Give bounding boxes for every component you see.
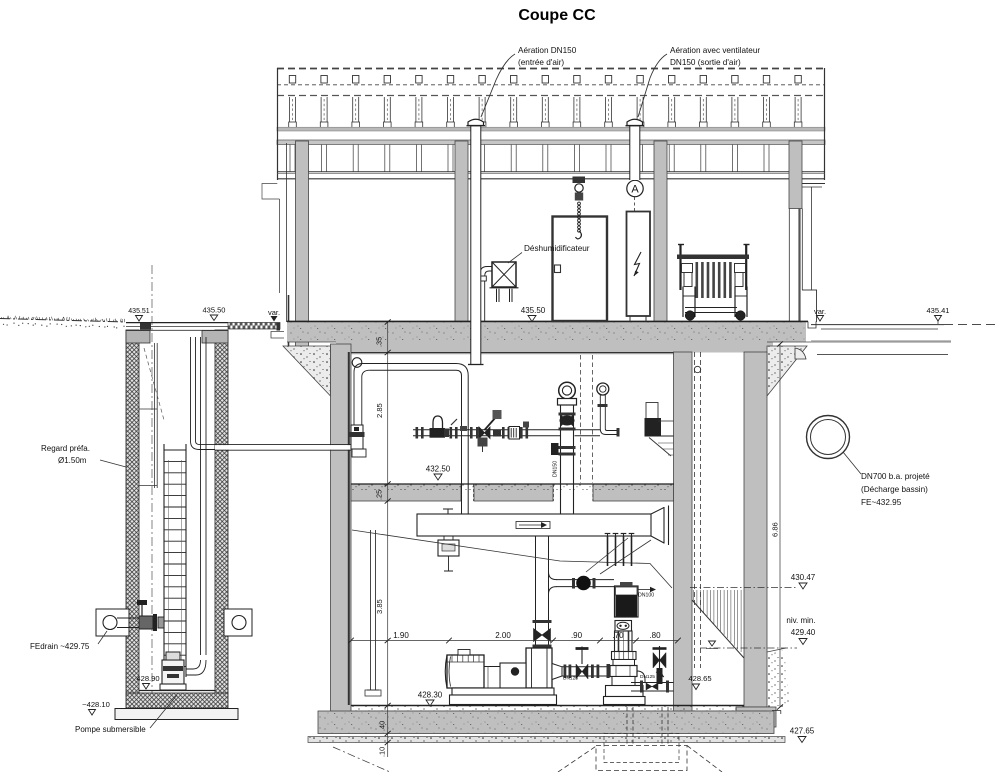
svg-text:DN100: DN100 (638, 593, 654, 599)
svg-text:3.85: 3.85 (375, 599, 384, 614)
svg-text:Déshumidificateur: Déshumidificateur (524, 244, 590, 253)
svg-text:Pompe submersible: Pompe submersible (75, 725, 146, 734)
svg-text:.70: .70 (612, 631, 624, 640)
svg-text:DN125: DN125 (563, 676, 578, 682)
svg-text:DN700 b.a. projeté: DN700 b.a. projeté (861, 472, 930, 481)
svg-text:var.: var. (814, 307, 826, 316)
svg-text:429.40: 429.40 (791, 628, 816, 637)
svg-text:435.50: 435.50 (203, 306, 226, 315)
svg-text:var.: var. (268, 308, 280, 317)
svg-text:FEdrain ~429.75: FEdrain ~429.75 (30, 642, 90, 651)
svg-text:430.47: 430.47 (791, 573, 816, 582)
svg-text:2.00: 2.00 (495, 631, 511, 640)
svg-text:.90: .90 (571, 631, 583, 640)
svg-text:428.90: 428.90 (136, 674, 159, 683)
svg-text:435.50: 435.50 (521, 306, 546, 315)
svg-text:DN150: DN150 (553, 461, 559, 477)
svg-text:.80: .80 (649, 631, 661, 640)
svg-text:DN150 (sortie d'air): DN150 (sortie d'air) (670, 58, 741, 67)
svg-text:A: A (631, 184, 639, 196)
svg-text:1.90: 1.90 (393, 631, 409, 640)
svg-text:435.51: 435.51 (128, 308, 150, 315)
svg-text:FE~432.95: FE~432.95 (861, 498, 902, 507)
svg-text:428.65: 428.65 (688, 674, 711, 683)
svg-text:DN125: DN125 (640, 674, 655, 680)
svg-text:.40: .40 (378, 721, 387, 731)
svg-text:Aération DN150: Aération DN150 (518, 46, 577, 55)
svg-text:~428.10: ~428.10 (82, 700, 110, 709)
svg-text:428.30: 428.30 (418, 691, 443, 700)
svg-text:432.50: 432.50 (426, 465, 451, 474)
svg-text:.35: .35 (375, 337, 384, 347)
svg-text:(Décharge bassin): (Décharge bassin) (861, 485, 928, 494)
svg-text:427.65: 427.65 (790, 727, 815, 736)
svg-text:.10: .10 (378, 747, 387, 757)
svg-text:.25: .25 (375, 490, 384, 500)
svg-text:(entrée d'air): (entrée d'air) (518, 58, 564, 67)
svg-text:Ø1.50m: Ø1.50m (58, 456, 87, 465)
svg-text:Regard préfa.: Regard préfa. (41, 444, 90, 453)
svg-text:6.86: 6.86 (771, 522, 780, 537)
svg-text:435.41: 435.41 (927, 306, 950, 315)
svg-text:niv. min.: niv. min. (786, 616, 815, 625)
svg-text:Aération avec ventilateur: Aération avec ventilateur (670, 46, 760, 55)
svg-text:Coupe CC: Coupe CC (518, 7, 596, 24)
svg-text:2.85: 2.85 (375, 403, 384, 418)
